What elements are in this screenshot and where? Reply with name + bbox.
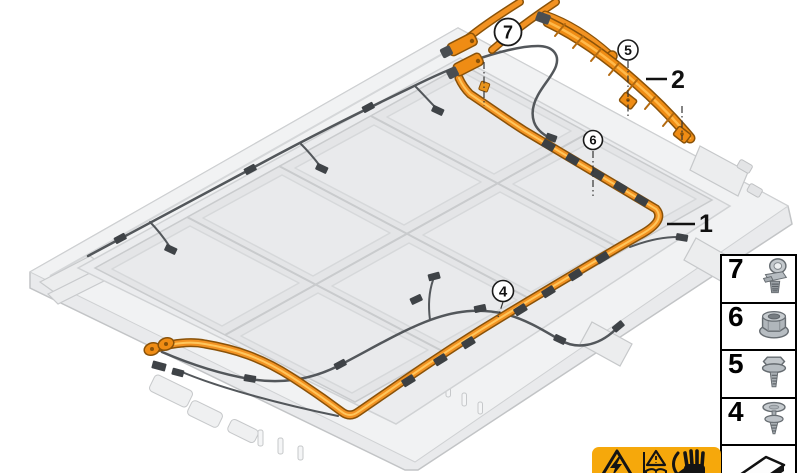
cable-lug-screw-icon — [754, 256, 794, 303]
callout-7-number: 7 — [503, 22, 513, 42]
expansion-rivet-icon — [754, 398, 794, 445]
callout-4[interactable]: 4 — [493, 281, 514, 302]
legend-number: 4 — [728, 396, 744, 428]
callout-5-number: 5 — [624, 42, 632, 58]
battery-pack-illustration: 7 5 6 4 2 1 — [0, 0, 800, 473]
callout-4-number: 4 — [499, 283, 508, 300]
legend-number: 6 — [728, 301, 744, 333]
hv-warning-label — [592, 447, 721, 473]
parts-diagram-page: 7 5 6 4 2 1 — [0, 0, 800, 473]
legend-row-7[interactable]: 7 — [720, 254, 797, 304]
legend-row-wedge[interactable] — [720, 444, 797, 473]
fastener-legend: 7 6 — [720, 254, 797, 473]
callout-6-number: 6 — [589, 133, 596, 148]
flange-nut-icon — [754, 303, 794, 350]
wedge-icon — [726, 449, 792, 473]
legend-number: 5 — [728, 348, 744, 380]
legend-number: 7 — [728, 253, 744, 285]
callout-6[interactable]: 6 — [584, 131, 603, 150]
legend-row-6[interactable]: 6 — [720, 302, 797, 352]
callout-1-number: 1 — [699, 210, 713, 238]
callout-2-number: 2 — [671, 66, 685, 94]
electrical-hazard-icon — [600, 451, 634, 473]
legend-row-5[interactable]: 5 — [720, 349, 797, 399]
hex-flange-screw-icon — [754, 351, 794, 398]
callout-7[interactable]: 7 — [495, 19, 522, 46]
read-manual-icon — [646, 451, 666, 473]
callout-5[interactable]: 5 — [618, 40, 638, 60]
legend-row-4[interactable]: 4 — [720, 397, 797, 447]
hand-injury-icon — [674, 451, 706, 473]
